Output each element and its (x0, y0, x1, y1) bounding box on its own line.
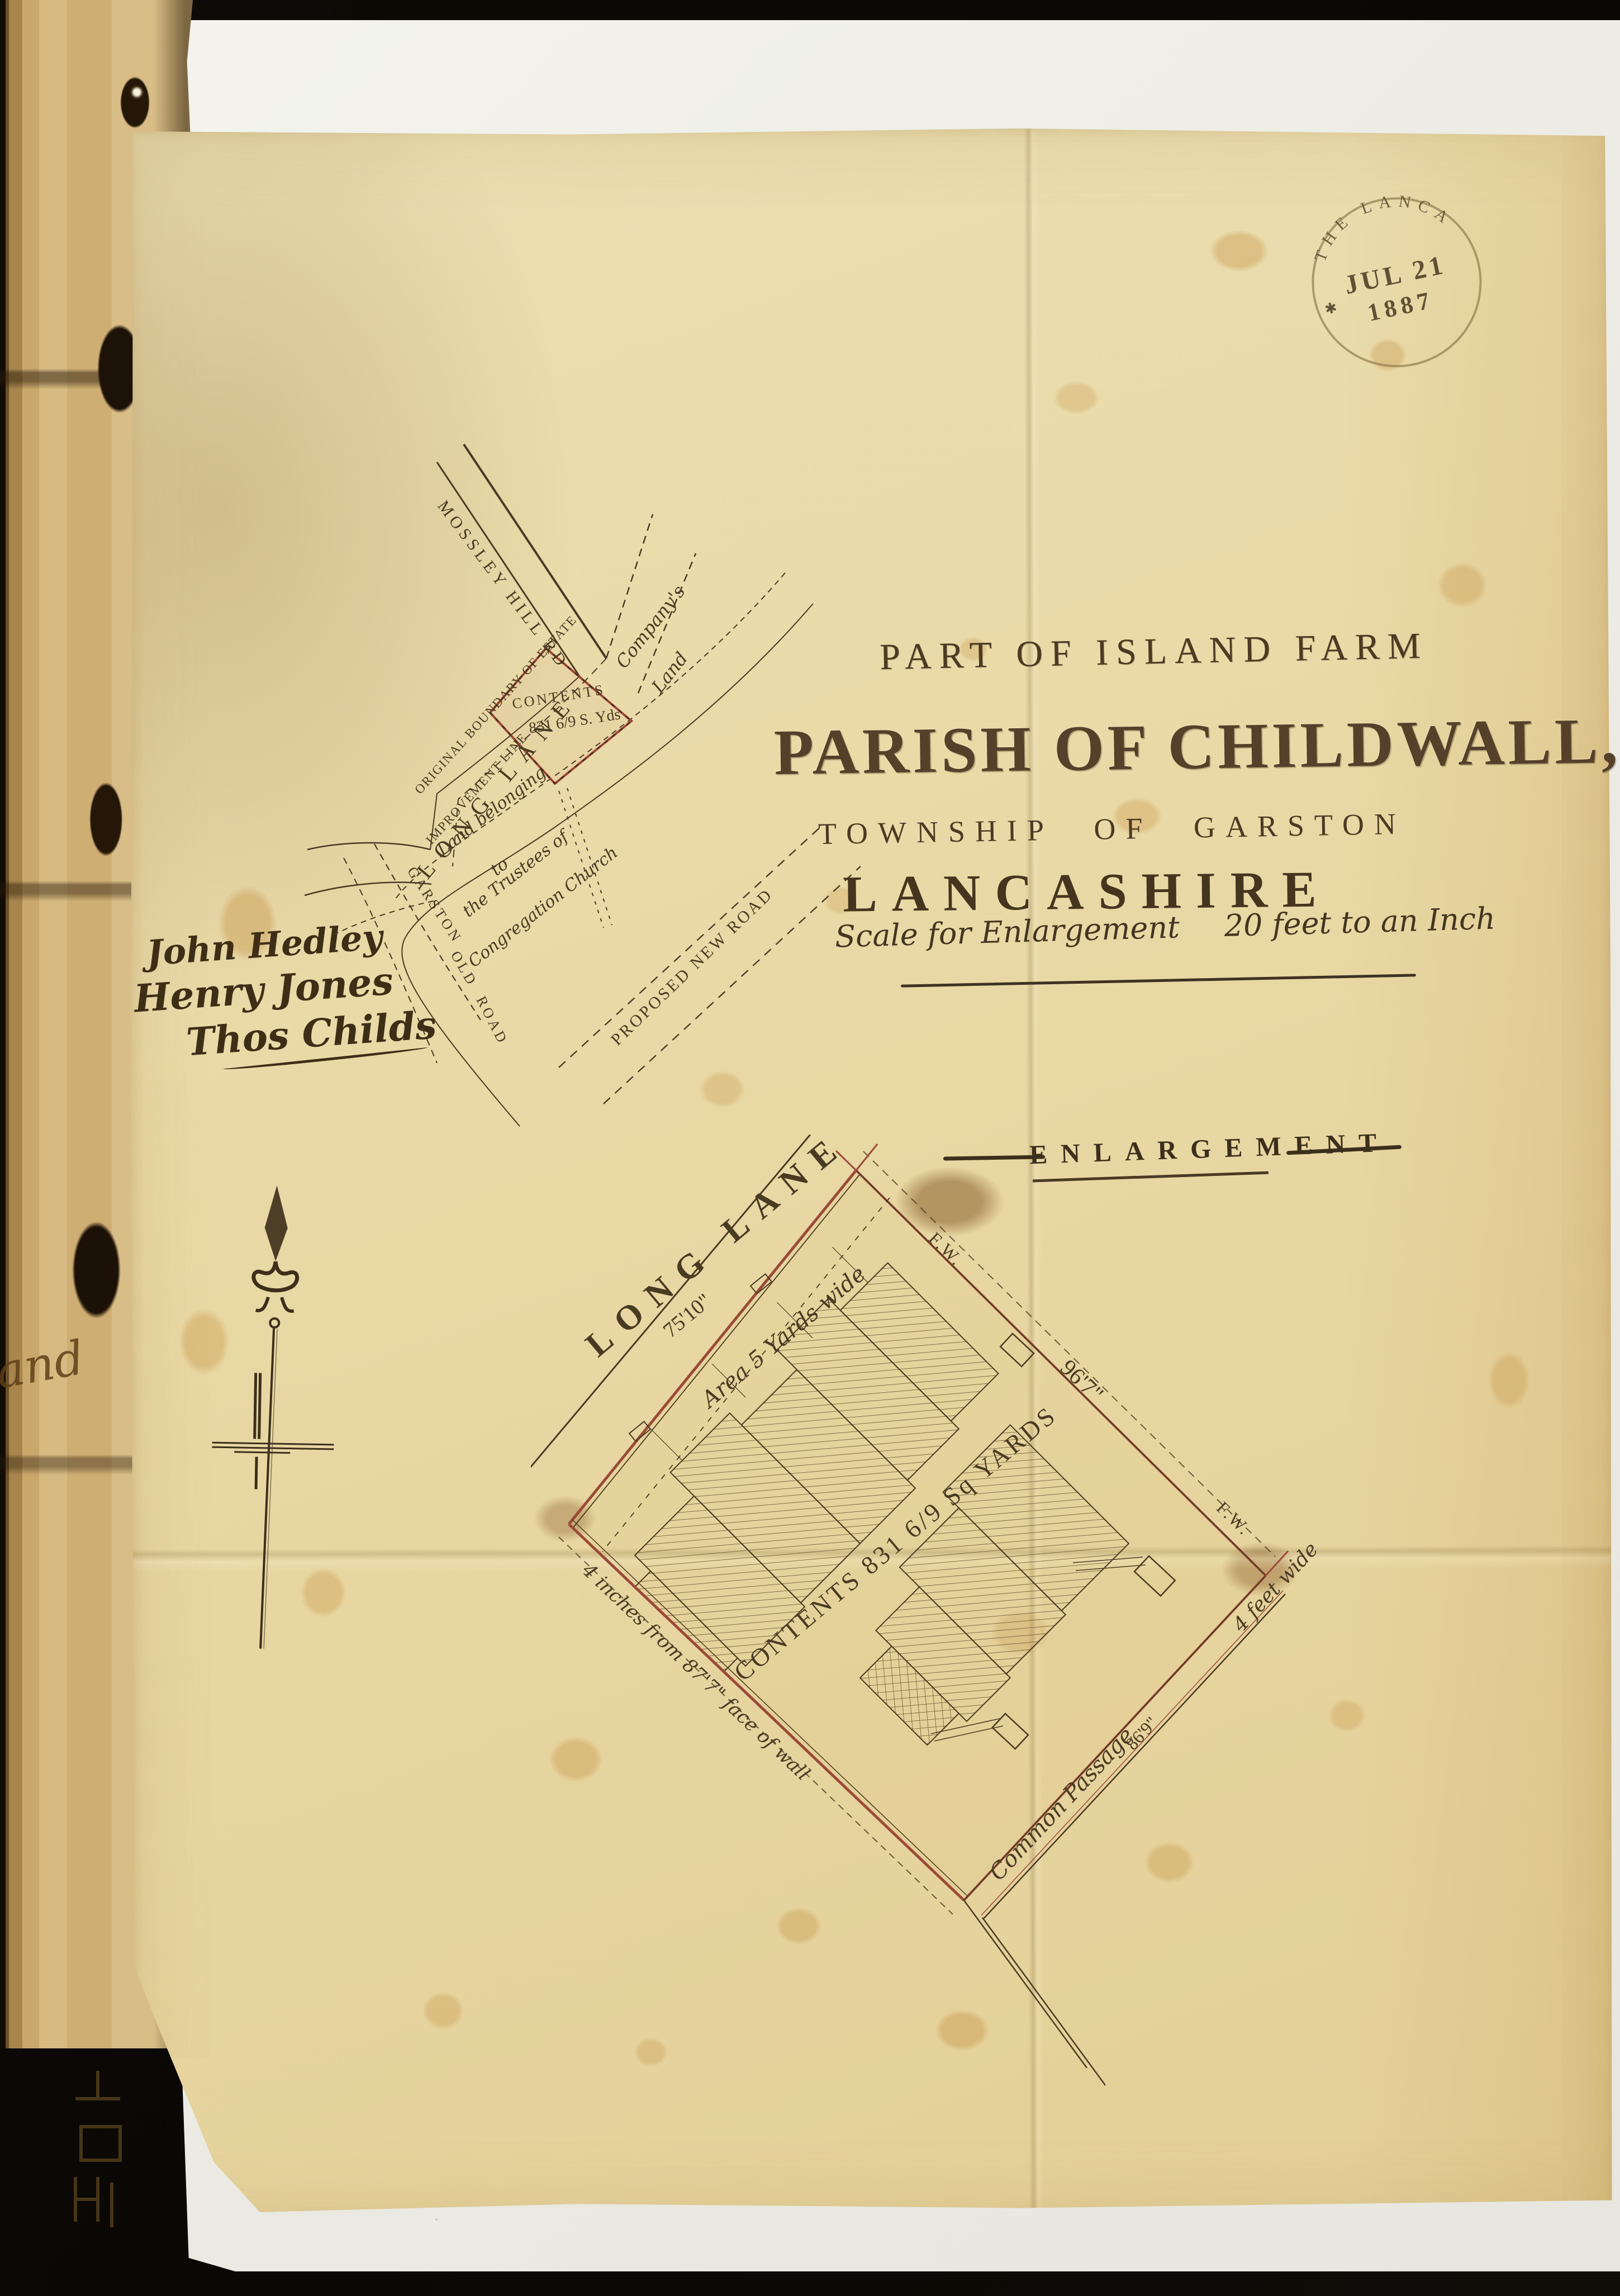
emboss-glyph (75, 2071, 120, 2099)
stamp-date: JUL 21 (1342, 250, 1448, 300)
arrow-shaft-2 (264, 1329, 277, 1649)
date-stamp: THE LANCA ✱ JUL 21 1887 (1279, 168, 1516, 399)
punch-hole (130, 85, 144, 99)
cross-horizontal (212, 1443, 334, 1454)
scanned-survey-map: land THE LANCA ✱ JUL 21 1887 PART OF ISL… (0, 0, 1620, 2296)
arrow-shaft (260, 1329, 274, 1649)
arrow-head (264, 1187, 288, 1261)
cover-embossed-marks (59, 2065, 142, 2233)
proposed-new-road-kerb-2 (604, 866, 861, 1104)
margin-handwriting-fragment: land (0, 1330, 88, 1402)
north-arrow-icon (197, 1175, 351, 1681)
emboss-square (81, 2127, 120, 2160)
passage-extension (964, 1900, 1105, 2085)
arrow-scroll-ornament (253, 1261, 297, 1291)
garston-label-3: ROAD (473, 994, 511, 1048)
location-plan: MOSSLEY HILL RD LONG LANE GARSTON OLD RO… (291, 402, 950, 1196)
arrow-ring (270, 1318, 279, 1327)
emboss-h-glyph (75, 2177, 112, 2227)
enlargement-plan: LONG LANE 75'10" F.W. 96'7" F.W. Area 5 … (531, 1135, 1414, 2096)
cross-vertical (254, 1373, 260, 1489)
arrow-fleur (256, 1297, 294, 1311)
stamp-star-icon: ✱ (1323, 300, 1338, 318)
fork-prong-1 (307, 843, 430, 850)
proposed-new-road-label: PROPOSED NEW ROAD (607, 885, 777, 1049)
